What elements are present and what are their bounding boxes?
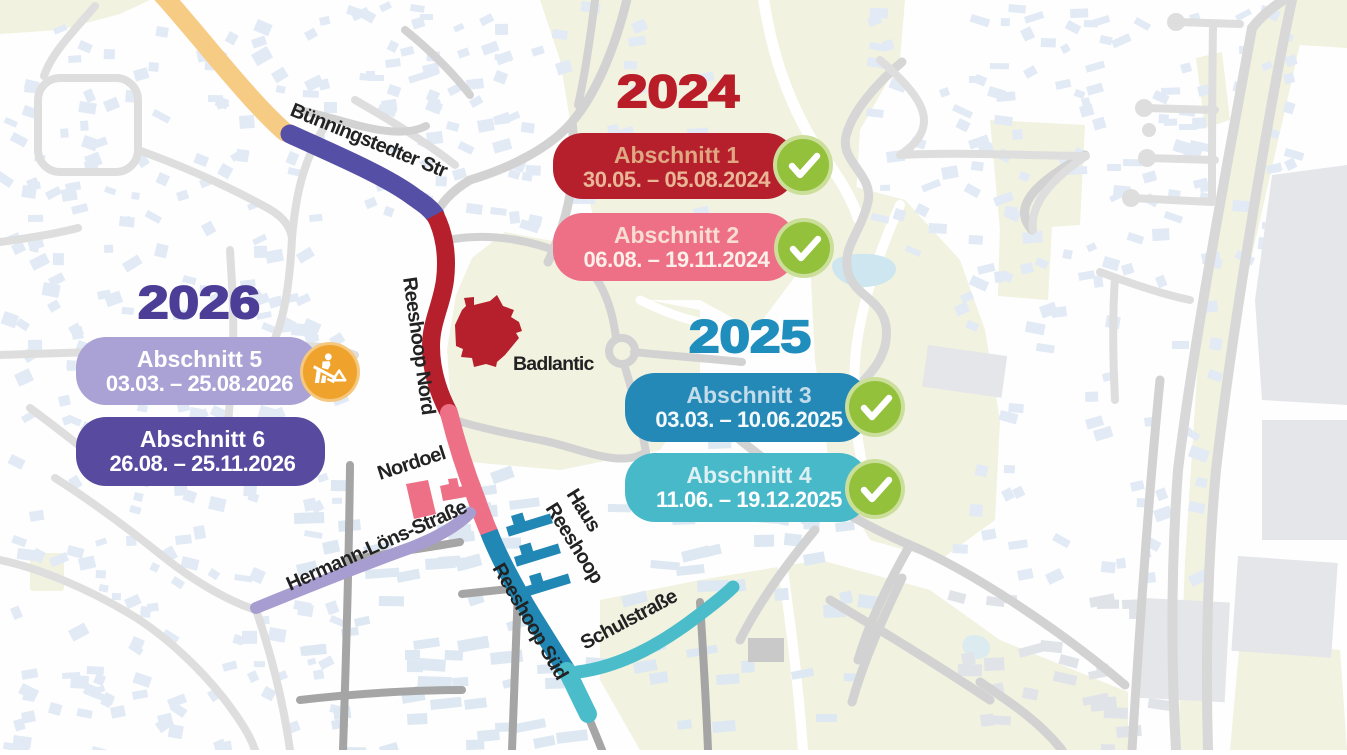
svg-text:Abschnitt 5: Abschnitt 5 [137, 346, 262, 372]
svg-text:Abschnitt 4: Abschnitt 4 [686, 462, 811, 488]
svg-text:03.03. – 25.08.2026: 03.03. – 25.08.2026 [106, 371, 293, 396]
svg-text:Abschnitt 1: Abschnitt 1 [614, 142, 739, 168]
svg-text:2025: 2025 [689, 311, 811, 362]
svg-text:Abschnitt 6: Abschnitt 6 [140, 426, 265, 452]
svg-text:30.05. – 05.08.2024: 30.05. – 05.08.2024 [583, 167, 771, 192]
svg-text:26.08. – 25.11.2026: 26.08. – 25.11.2026 [110, 451, 296, 476]
svg-text:Abschnitt 2: Abschnitt 2 [614, 222, 739, 248]
svg-text:06.08. – 19.11.2024: 06.08. – 19.11.2024 [584, 247, 771, 272]
svg-text:2026: 2026 [138, 277, 260, 328]
svg-text:03.03. – 10.06.2025: 03.03. – 10.06.2025 [655, 407, 842, 432]
svg-text:2024: 2024 [617, 66, 739, 117]
svg-text:Badlantic: Badlantic [513, 353, 595, 375]
svg-text:11.06. – 19.12.2025: 11.06. – 19.12.2025 [656, 487, 842, 512]
svg-text:Abschnitt 3: Abschnitt 3 [686, 382, 811, 408]
